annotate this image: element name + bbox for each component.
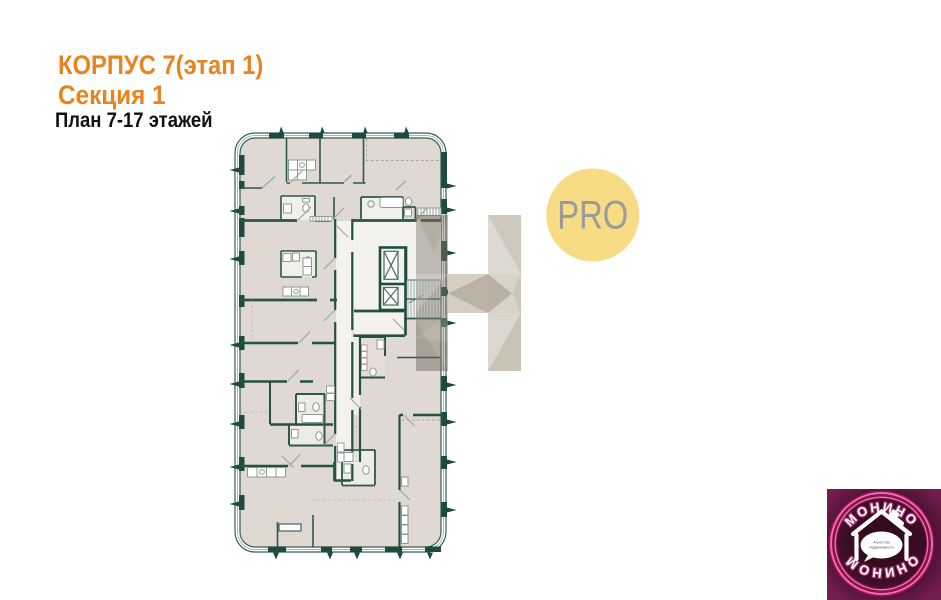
svg-text:Агентство: Агентство bbox=[873, 541, 890, 545]
svg-text:недвижимости: недвижимости bbox=[869, 546, 893, 550]
svg-text:PRO: PRO bbox=[557, 192, 628, 237]
